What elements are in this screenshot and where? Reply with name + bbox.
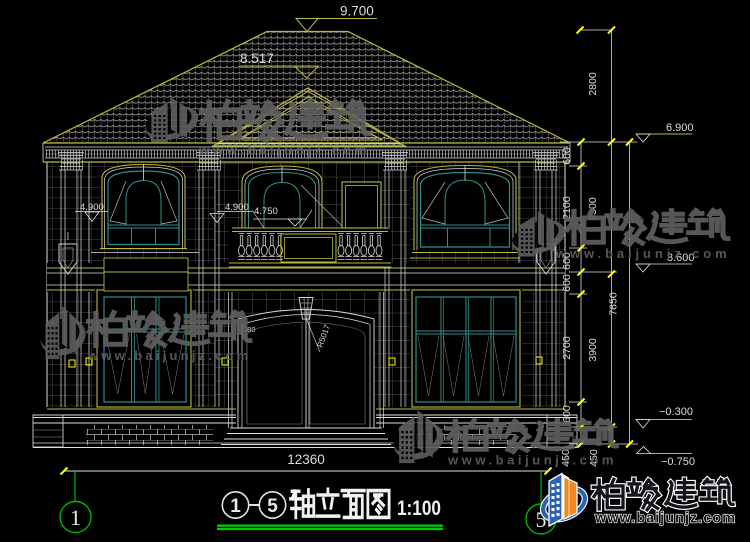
- svg-text:2700: 2700: [561, 336, 573, 360]
- svg-text:4.900: 4.900: [80, 202, 104, 213]
- svg-text:−0.750: −0.750: [661, 456, 695, 468]
- svg-text:3900: 3900: [587, 338, 599, 362]
- svg-text:www.baijunjz.com: www.baijunjz.com: [447, 453, 617, 468]
- svg-text:600: 600: [561, 274, 573, 292]
- svg-text:1: 1: [230, 496, 241, 517]
- svg-text:4.900: 4.900: [225, 202, 249, 213]
- svg-text:−0.300: −0.300: [659, 406, 693, 418]
- svg-text:www.baijunjz.com: www.baijunjz.com: [555, 246, 731, 261]
- svg-text:www.baijunjz.com: www.baijunjz.com: [198, 143, 370, 158]
- svg-text:1: 1: [70, 505, 81, 530]
- svg-text:1:100: 1:100: [397, 496, 441, 520]
- svg-text:9.700: 9.700: [340, 4, 374, 19]
- svg-text:600: 600: [561, 405, 573, 423]
- svg-text:www.baijunjz.com: www.baijunjz.com: [594, 511, 736, 527]
- svg-text:6.900: 6.900: [666, 122, 694, 134]
- svg-text:600: 600: [561, 147, 573, 165]
- svg-text:8.517: 8.517: [240, 51, 274, 66]
- svg-text:2100: 2100: [561, 196, 573, 220]
- svg-text:7650: 7650: [608, 292, 620, 316]
- svg-text:12360: 12360: [287, 452, 325, 467]
- svg-text:www.baijunjz.com: www.baijunjz.com: [87, 348, 251, 363]
- svg-text:2800: 2800: [587, 72, 599, 96]
- svg-text:4.750: 4.750: [254, 206, 278, 217]
- svg-text:5: 5: [267, 496, 278, 517]
